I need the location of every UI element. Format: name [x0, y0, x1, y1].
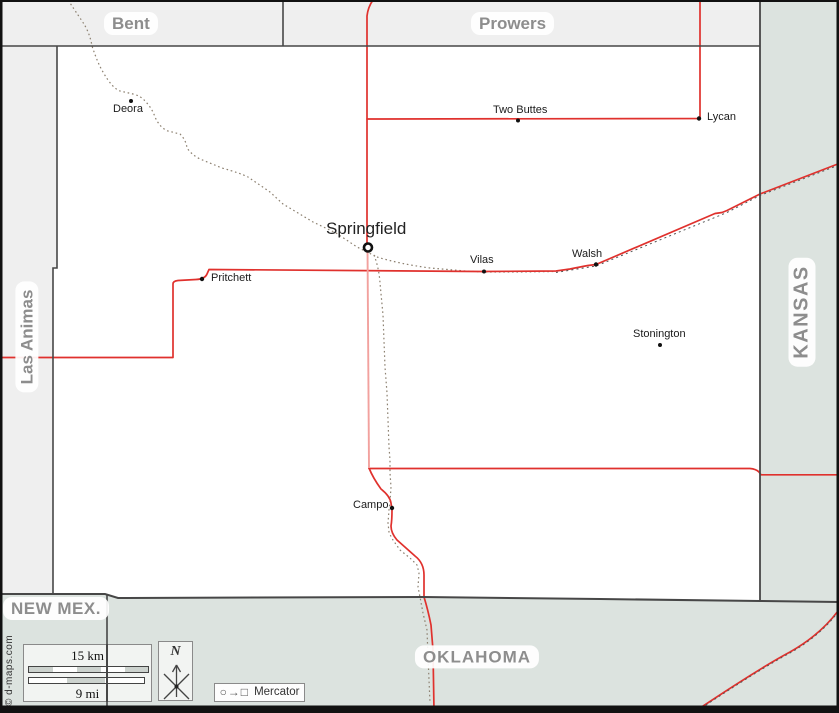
projection-icon: ○→□ — [220, 684, 250, 701]
scale-bar-km — [28, 666, 149, 673]
town-dot-walsh — [594, 262, 598, 266]
town-dot-vilas — [482, 270, 486, 274]
town-label-deora: Deora — [113, 103, 143, 115]
road-us160 — [0, 164, 839, 358]
map-canvas: Bent Prowers Las Animas KANSAS NEW MEX. … — [0, 0, 839, 713]
town-label-pritchett: Pritchett — [211, 272, 251, 284]
frame-bottom — [0, 706, 839, 713]
state-label-new-mexico: NEW MEX. — [3, 597, 109, 620]
town-dots — [129, 99, 701, 510]
town-dot-pritchett — [200, 277, 204, 281]
border-nm-ok-overlay — [106, 644, 108, 702]
town-dot-stonington — [658, 343, 662, 347]
town-label-two-buttes: Two Buttes — [493, 104, 547, 116]
projection-box: ○→□ Mercator — [214, 683, 305, 702]
scale-mi-label: 9 mi — [24, 686, 151, 702]
town-dot-lycan — [697, 116, 701, 120]
town-label-stonington: Stonington — [633, 328, 686, 340]
projection-name: Mercator — [254, 684, 299, 701]
town-label-vilas: Vilas — [470, 254, 494, 266]
town-label-walsh: Walsh — [572, 248, 602, 260]
north-arrow-box: N — [158, 641, 193, 701]
road-springfield-south-light — [368, 247, 370, 468]
state-label-kansas: KANSAS — [789, 257, 816, 366]
town-label-lycan: Lycan — [707, 111, 736, 123]
scale-bar-mi — [28, 677, 145, 684]
county-label-prowers: Prowers — [471, 12, 554, 35]
north-arrow-icon — [159, 661, 194, 701]
town-dot-campo — [390, 506, 394, 510]
county-label-las-animas: Las Animas — [15, 282, 38, 393]
town-label-springfield: Springfield — [326, 220, 406, 238]
copyright-credit: © d-maps.com — [4, 635, 15, 706]
north-label: N — [159, 644, 192, 660]
county-seat-marker-springfield — [364, 244, 372, 252]
frame-top — [0, 0, 839, 2]
scale-km-label: 15 km — [24, 648, 151, 664]
county-label-bent: Bent — [104, 12, 158, 35]
town-label-campo: Campo — [353, 499, 388, 511]
state-label-oklahoma: OKLAHOMA — [415, 645, 539, 668]
scale-bar-box: 15 km 9 mi — [23, 644, 152, 702]
town-dot-two-buttes — [516, 119, 520, 123]
